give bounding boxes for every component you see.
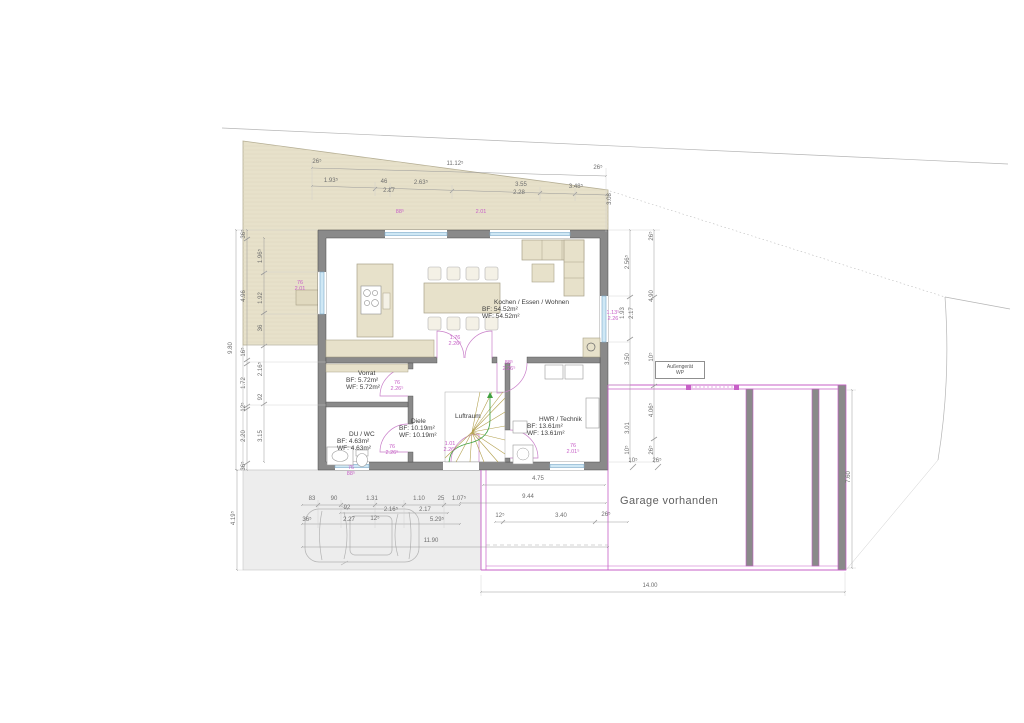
dimension-label: 4.75 [532,476,544,482]
dimension-label: 26⁵ [652,458,661,464]
appliance-1 [545,365,563,379]
toilet [357,454,368,467]
dimension-label: 26⁵ [312,159,321,165]
coffee-table [532,264,554,282]
dimension-label: 1.92 [258,292,264,304]
dimension-label: 9.80 [228,342,234,354]
dimension-label: 2.16⁵ [384,507,398,513]
dimension-label: 2.17 [629,307,635,319]
room-label-vorrat: VorratBF: 5.72m²WF: 5.72m² [346,370,380,391]
dimension-label: 3.55 [515,182,527,188]
dimension-label: 46 [381,179,388,185]
dimension-label: 3.48⁵ [569,184,583,190]
window-hwr [550,465,584,468]
dimension-label: 3.15 [258,430,264,442]
garage-note: Garage vorhanden [620,495,718,507]
dimension-label: 1.72 [241,377,247,389]
dimension-label: 4.90 [649,290,655,302]
dimension-label: 26⁵ [593,165,602,171]
opening-size-label: 762.01 [295,280,306,292]
opening-size-label: 1.762.26⁵ [449,335,462,347]
dimension-label: 4.06⁵ [649,403,655,417]
garage-wall-mid2 [812,389,819,566]
dimension-label: 5.29⁵ [430,517,444,523]
opening-size-label: 1.012.26⁵ [444,441,457,453]
water-heater [586,398,599,428]
dimension-label: 1.10 [413,496,425,502]
opening-size-label: 88⁵2.26⁵ [503,360,516,372]
room-label-du-wc: DU / WCBF: 4.63m²WF: 4.63m² [337,431,375,452]
dimension-label: 2.27 [343,517,355,523]
outdoor-unit-label: Außengerät WP [655,361,705,379]
room-label-diele: DieleBF: 10.19m²WF: 10.19m² [399,418,437,439]
outdoor-unit-line2: WP [658,370,702,376]
opening-size-label: 762.26⁵ [391,380,404,392]
dimension-label: 1.31 [366,496,378,502]
dimension-label: 10⁵ [628,458,637,464]
dimension-label: 26⁵ [649,445,655,454]
dimension-label: 9.44 [522,494,534,500]
dimension-label: 4.96 [241,290,247,302]
dimension-label: 26⁵ [601,512,610,518]
dimension-label: 36⁵ [241,461,247,470]
dimension-label: 10⁵ [625,445,631,454]
dimension-label: 2.17 [383,188,395,194]
window-top-right [490,233,570,236]
dimension-label: 2.16⁵ [258,362,264,376]
dimension-label: 36 [258,325,264,332]
dimension-label: 26⁵ [649,231,655,240]
dimension-label: 4.19⁵ [231,511,237,525]
dimension-label: 3.50 [625,353,631,365]
opening-size-label: 1.13⁵2.26 [607,310,620,322]
opening-size-label: 762.26⁵ [386,444,399,456]
dimension-label: 3.40 [555,513,567,519]
dimension-label: 92 [258,394,264,401]
opening-size-label: 7688⁵ [347,465,355,477]
dimension-label: 12⁵ [495,513,504,519]
dimension-label: 11.90 [424,538,439,544]
dimension-label: 7.60 [846,471,852,483]
room-label-hwr: HWR / TechnikBF: 13.61m²WF: 13.61m² [527,416,582,437]
opening-size-label: 88⁵ [396,209,404,215]
dimension-label: 12⁵ [241,402,247,411]
room-label-living: Kochen / Essen / WohnenBF: 54.52m²WF: 54… [482,299,569,320]
cooktop [361,286,381,314]
dimension-label: 16⁵ [241,347,247,356]
dimension-label: 1.93 [620,307,626,319]
floor-plan-sheet: Kochen / Essen / WohnenBF: 54.52m²WF: 54… [0,0,1024,723]
dimension-label: 1.96⁵ [258,249,264,263]
dimension-label: 2.28 [513,190,525,196]
dimension-label: 92 [344,505,351,511]
dimension-label: 36⁵ [302,517,311,523]
garage-wall-east [838,385,846,570]
dimension-label: 2.56⁵ [625,255,631,269]
dimension-label: 3.08 [607,193,613,205]
appliance-2 [565,365,583,379]
dimension-label: 12⁵ [370,516,379,522]
garage-wall-mid [746,389,753,566]
window-east [602,296,606,342]
dimension-label: 2.63⁵ [414,180,428,186]
dimension-label: 83 [309,496,316,502]
kitchen-counter [326,340,434,357]
terrace-bench [296,290,318,305]
window-top-left [385,233,447,236]
dimension-label: 2.20 [241,430,247,442]
dimension-label: 14.00 [642,583,657,589]
opening-size-label: 762.01⁵ [567,443,580,455]
dimension-label: 2.17 [419,507,431,513]
dimension-label: 36⁵ [241,229,247,238]
dimension-label: 25 [438,496,445,502]
dimension-label: 3.01 [625,422,631,434]
dimension-label: 1.07⁵ [452,496,466,502]
window-west [320,272,324,314]
room-label-luftraum: Luftraum [455,413,481,420]
dimension-label: 90 [331,496,338,502]
dimension-label: 1.93⁵ [324,178,338,184]
opening-size-label: 2.01 [476,209,487,215]
dimension-label: 11.12⁵ [446,161,463,167]
